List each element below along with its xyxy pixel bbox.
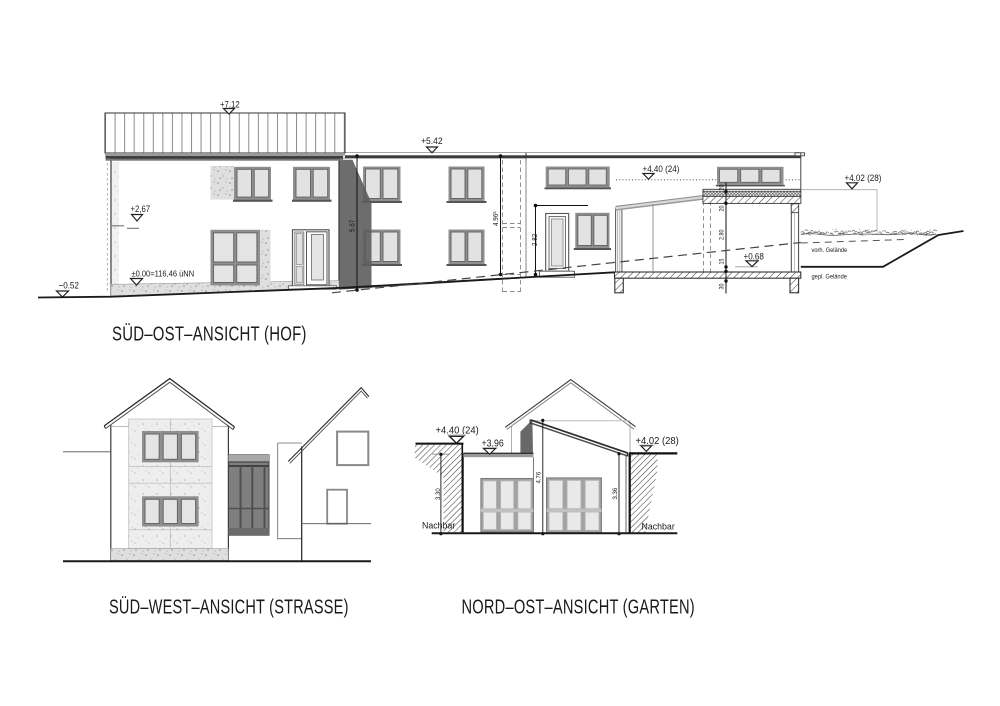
svg-text:+3,96: +3,96 [482,437,504,449]
svg-text:+4.02 (28): +4.02 (28) [845,172,882,183]
svg-text:3.36: 3.36 [612,487,619,499]
svg-text:3.30: 3.30 [435,488,442,500]
svg-text:±0.00=116,46 üNN: ±0.00=116,46 üNN [132,269,195,278]
svg-text:vorh. Gelände: vorh. Gelände [812,248,848,254]
svg-text:Nachbar: Nachbar [422,521,455,531]
svg-text:+5.42: +5.42 [421,136,443,147]
svg-text:gepl. Gelände: gepl. Gelände [812,274,848,280]
svg-text:20: 20 [719,206,725,212]
svg-text:+2,67: +2,67 [131,203,151,214]
svg-text:SÜD–WEST–ANSICHT (STRASSE): SÜD–WEST–ANSICHT (STRASSE) [109,595,349,618]
svg-text:2.82: 2.82 [532,233,539,246]
svg-text:+4.40 (24): +4.40 (24) [643,163,680,174]
svg-text:15: 15 [719,259,725,265]
svg-text:2.80: 2.80 [719,230,725,240]
svg-text:Nachbar: Nachbar [642,522,675,532]
svg-text:NORD–OST–ANSICHT (GARTEN): NORD–OST–ANSICHT (GARTEN) [462,595,695,618]
svg-text:SÜD–OST–ANSICHT (HOF): SÜD–OST–ANSICHT (HOF) [112,322,307,345]
svg-text:5.67: 5.67 [349,219,356,232]
svg-text:−0.52: −0.52 [59,280,79,291]
svg-text:20: 20 [719,185,725,191]
svg-text:4.76: 4.76 [535,471,542,483]
svg-text:+0.68: +0.68 [744,251,764,262]
svg-text:30: 30 [719,284,725,290]
